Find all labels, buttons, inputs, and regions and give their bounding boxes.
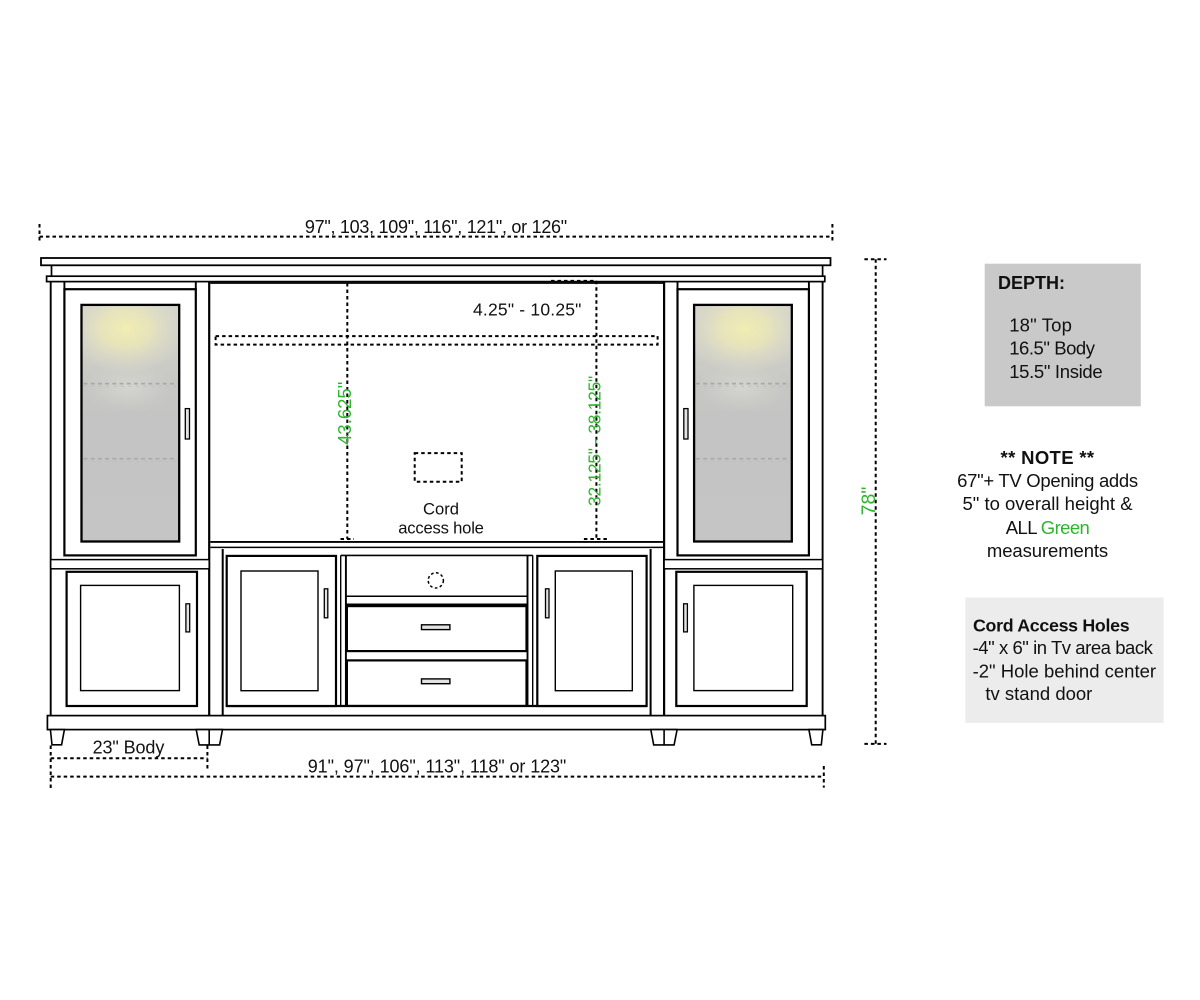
svg-text:97", 103, 109", 116", 121", or: 97", 103, 109", 116", 121", or 126" [305, 217, 567, 237]
svg-text:15.5" Inside: 15.5" Inside [1009, 361, 1102, 382]
svg-text:32.125" - 38.125": 32.125" - 38.125" [584, 376, 604, 506]
svg-text:** NOTE **: ** NOTE ** [1001, 447, 1095, 468]
svg-text:ALL Green: ALL Green [1006, 517, 1090, 538]
svg-text:measurements: measurements [987, 540, 1108, 561]
svg-text:16.5" Body: 16.5" Body [1009, 338, 1096, 359]
svg-text:Cord: Cord [423, 500, 459, 519]
svg-text:23" Body: 23" Body [93, 737, 165, 757]
svg-text:-2" Hole behind center: -2" Hole behind center [973, 660, 1156, 681]
svg-text:Cord Access Holes: Cord Access Holes [973, 616, 1130, 636]
svg-text:78": 78" [858, 487, 880, 516]
svg-text:-4" x 6" in Tv area back: -4" x 6" in Tv area back [973, 637, 1154, 658]
svg-text:tv stand door: tv stand door [985, 683, 1092, 704]
svg-text:access hole: access hole [398, 519, 483, 538]
svg-text:18" Top: 18" Top [1009, 315, 1072, 336]
svg-text:67"+ TV Opening adds: 67"+ TV Opening adds [957, 470, 1138, 491]
svg-text:DEPTH:: DEPTH: [998, 273, 1065, 293]
svg-text:4.25" - 10.25": 4.25" - 10.25" [473, 300, 582, 320]
svg-text:91", 97", 106", 113", 118" or: 91", 97", 106", 113", 118" or 123" [308, 757, 566, 777]
svg-text:43.625": 43.625" [334, 382, 355, 445]
svg-text:5" to overall height &: 5" to overall height & [962, 493, 1133, 514]
